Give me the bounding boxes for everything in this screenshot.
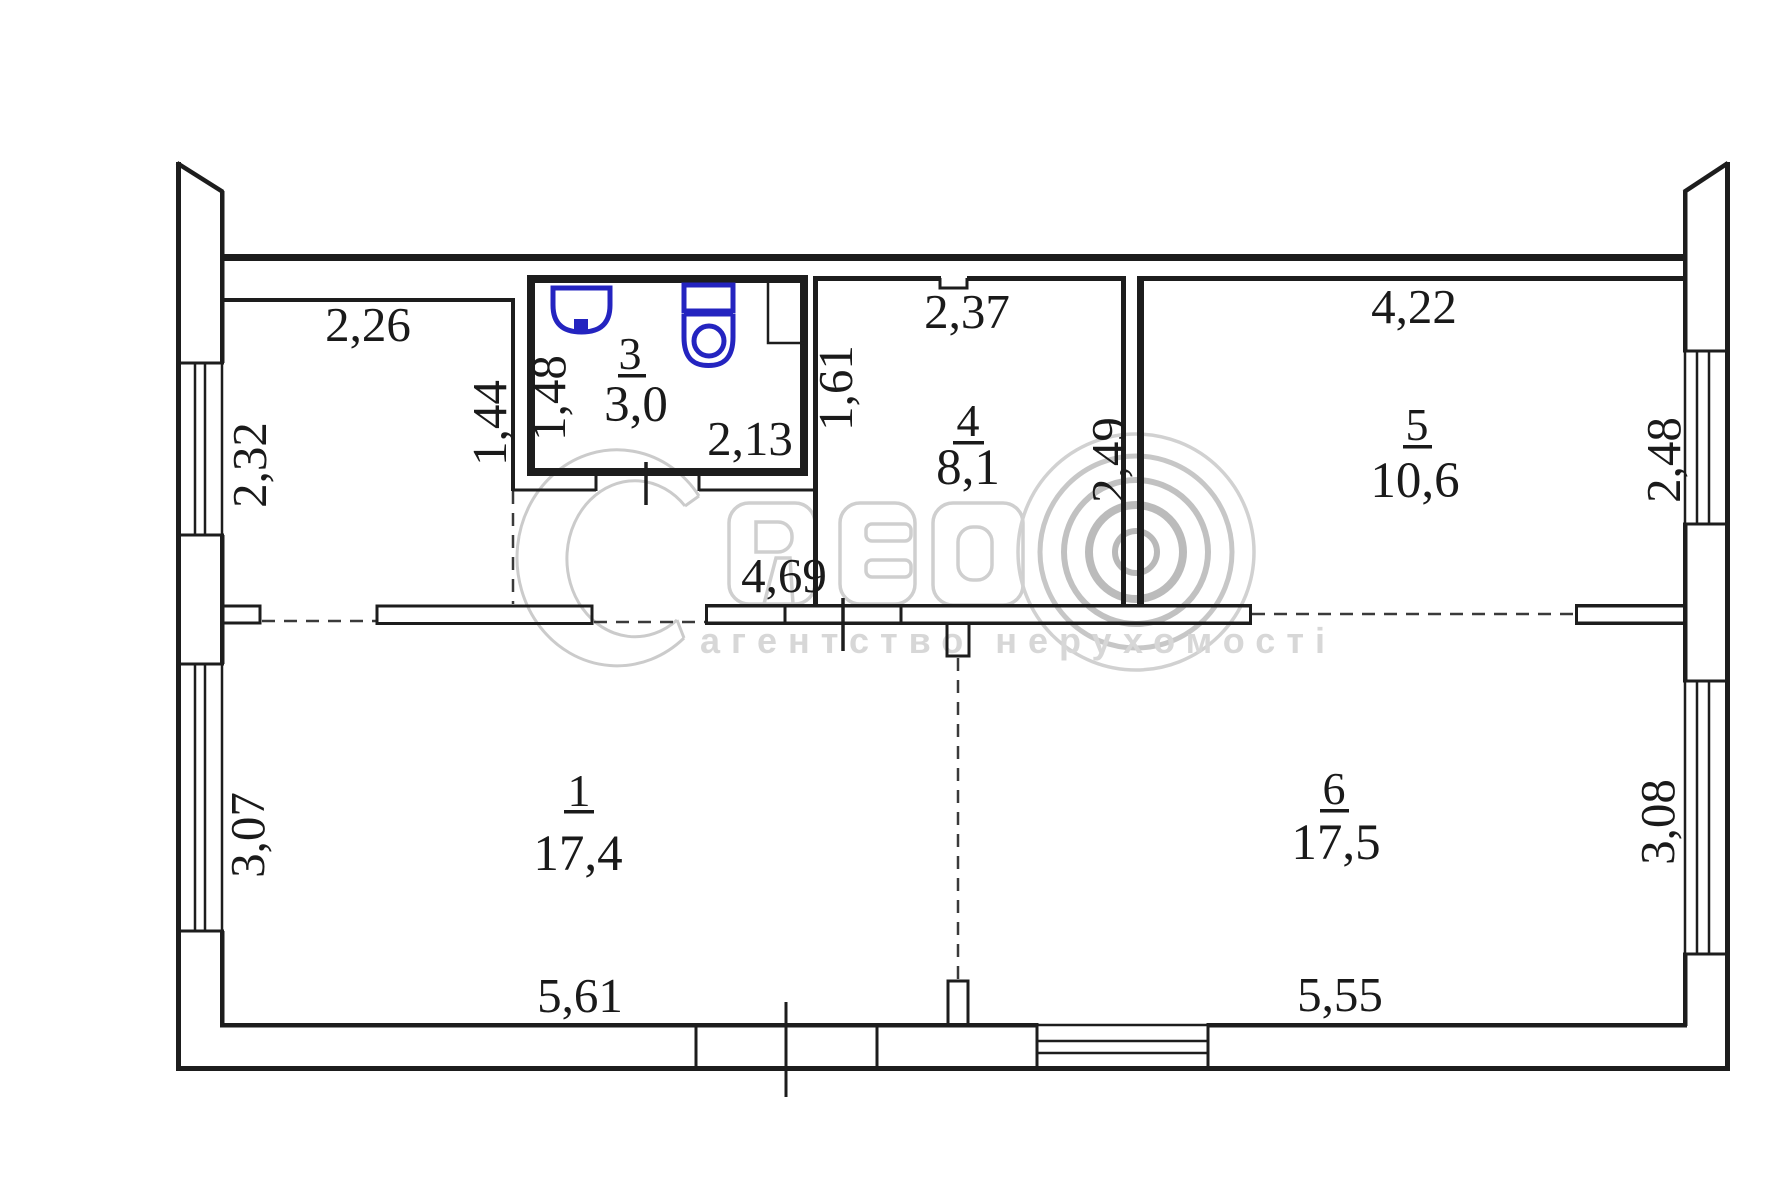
- svg-text:4,22: 4,22: [1371, 279, 1457, 334]
- svg-text:агентство нерухомості: агентство нерухомості: [700, 620, 1336, 661]
- svg-text:6: 6: [1323, 763, 1346, 814]
- svg-text:1,44: 1,44: [462, 380, 517, 466]
- svg-text:5,55: 5,55: [1297, 967, 1383, 1022]
- svg-text:3: 3: [619, 328, 642, 379]
- svg-text:10,6: 10,6: [1370, 453, 1459, 509]
- svg-text:3,08: 3,08: [1630, 779, 1685, 865]
- svg-text:1,48: 1,48: [521, 355, 576, 441]
- svg-text:1: 1: [568, 765, 591, 816]
- svg-text:2,37: 2,37: [924, 284, 1010, 339]
- svg-text:2,32: 2,32: [222, 422, 277, 508]
- svg-text:2,26: 2,26: [325, 297, 411, 352]
- svg-text:2,48: 2,48: [1636, 417, 1691, 503]
- svg-text:5,61: 5,61: [537, 968, 623, 1023]
- svg-text:5: 5: [1406, 399, 1429, 450]
- svg-text:4: 4: [957, 395, 980, 446]
- svg-text:3,07: 3,07: [220, 792, 275, 878]
- svg-text:17,5: 17,5: [1291, 815, 1380, 871]
- svg-text:4,69: 4,69: [741, 548, 827, 603]
- svg-text:2,49: 2,49: [1081, 417, 1136, 503]
- svg-text:1,61: 1,61: [808, 345, 863, 431]
- svg-text:8,1: 8,1: [936, 440, 1000, 496]
- svg-text:17,4: 17,4: [533, 826, 622, 882]
- svg-text:2,13: 2,13: [707, 411, 793, 466]
- svg-text:3,0: 3,0: [604, 377, 668, 433]
